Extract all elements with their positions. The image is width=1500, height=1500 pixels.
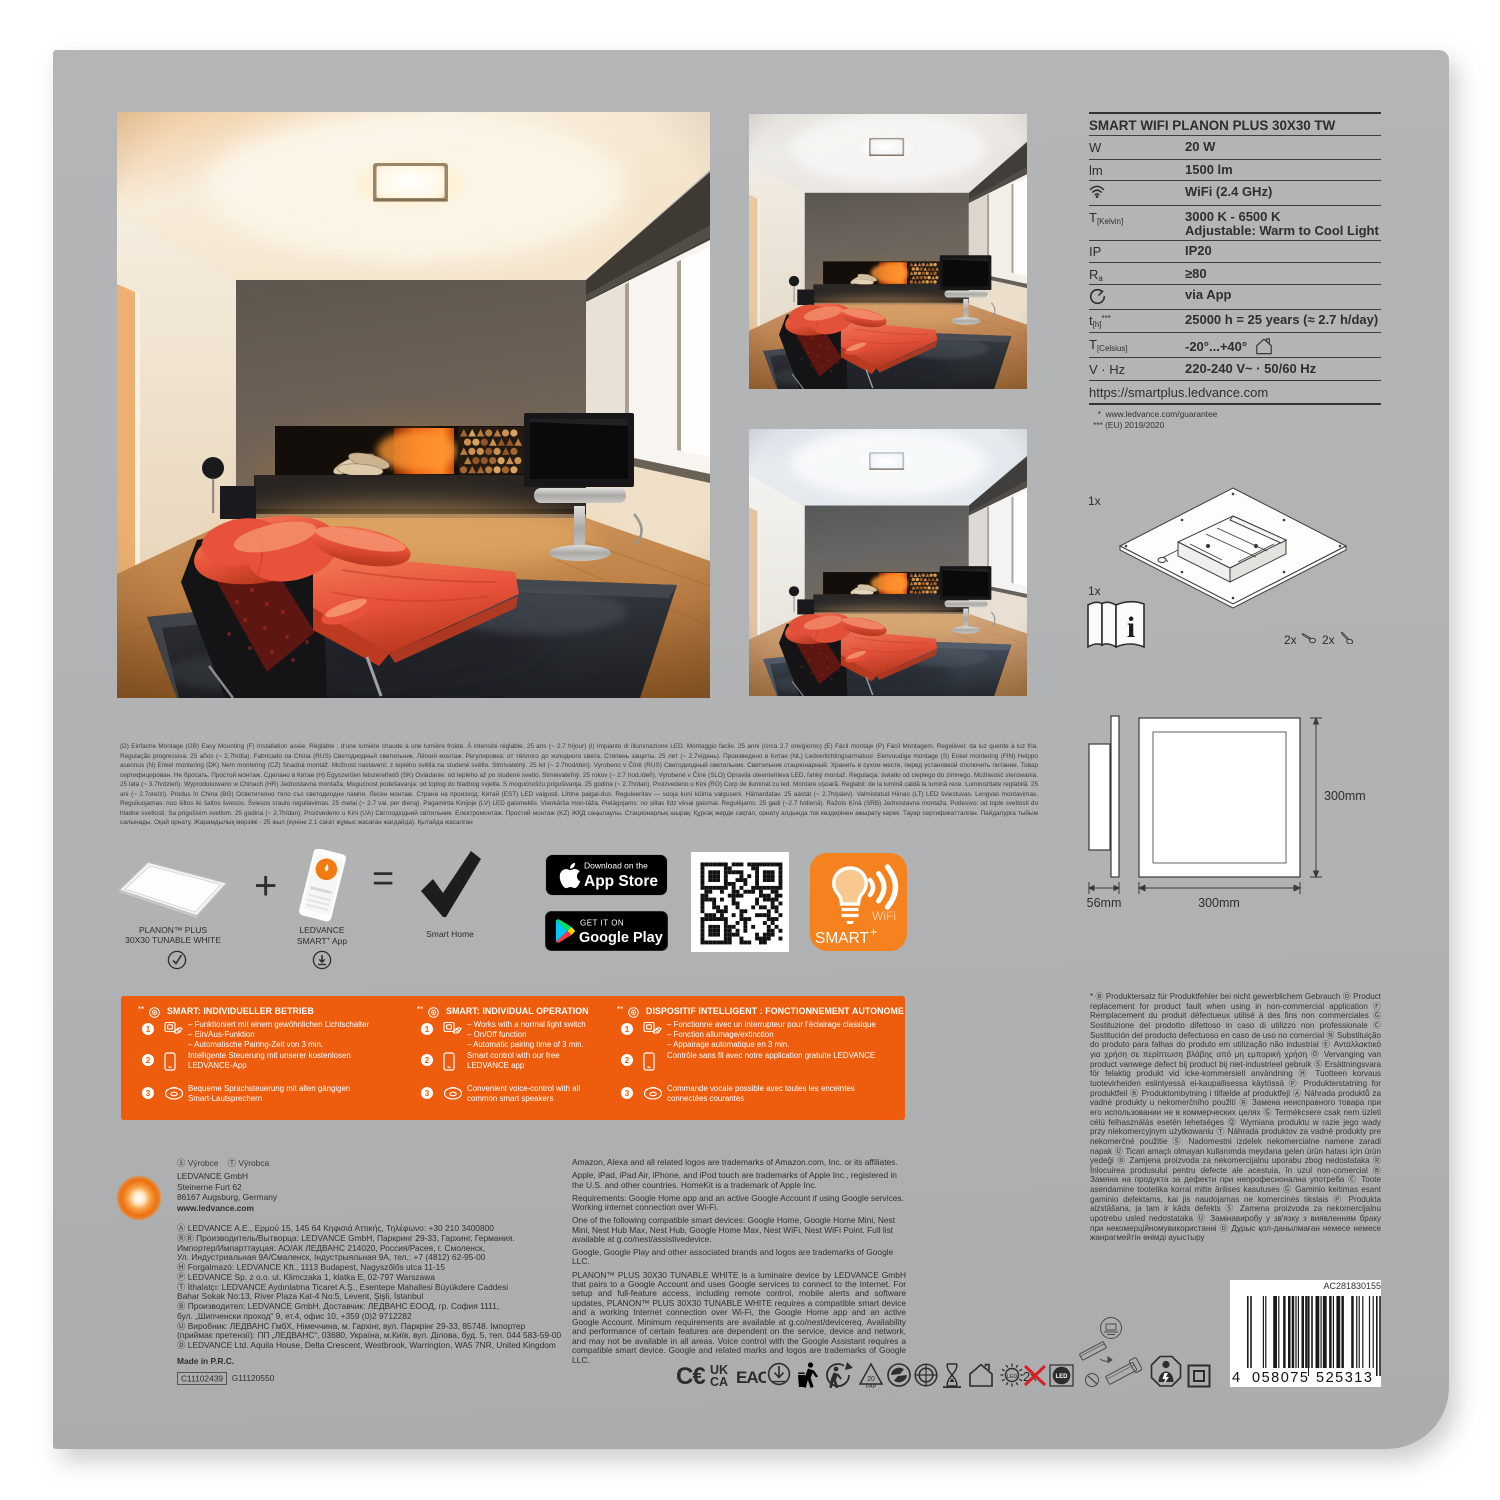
svg-text:EAC: EAC [736,1368,766,1387]
svg-text:300mm: 300mm [1198,896,1240,910]
svg-text:2: 2 [625,1056,630,1065]
svg-text:058075: 058075 [1252,1370,1309,1386]
svg-text:3: 3 [146,1089,151,1098]
svg-text:20: 20 [867,1376,875,1383]
svg-text:Google Play: Google Play [579,930,663,946]
svg-text:App Store: App Store [584,873,658,890]
svg-text:2: 2 [146,1056,151,1065]
svg-text:300mm: 300mm [1324,789,1366,803]
svg-text:i: i [1127,611,1135,644]
svg-text:GET IT ON: GET IT ON [580,919,624,928]
svg-text:CA: CA [710,1375,728,1388]
svg-text:525313: 525313 [1316,1370,1373,1386]
svg-text:LED: LED [1007,1374,1018,1380]
svg-text:3: 3 [625,1089,630,1098]
svg-text:4: 4 [1232,1370,1240,1386]
svg-text:56mm: 56mm [1087,896,1122,910]
svg-text:1: 1 [425,1025,430,1034]
svg-text:Download on the: Download on the [584,861,648,871]
svg-text:+: + [870,925,877,939]
svg-text:PAP: PAP [866,1384,877,1388]
svg-text:2: 2 [425,1056,430,1065]
svg-text:SMART: SMART [815,930,870,947]
svg-text:LED: LED [1056,1374,1069,1380]
svg-text:WiFi: WiFi [872,909,896,923]
svg-text:C€: C€ [676,1363,705,1388]
svg-text:3: 3 [425,1089,430,1098]
svg-text:1: 1 [146,1025,151,1034]
svg-text:1: 1 [625,1025,630,1034]
svg-text:AC281830155: AC281830155 [1323,1281,1381,1291]
